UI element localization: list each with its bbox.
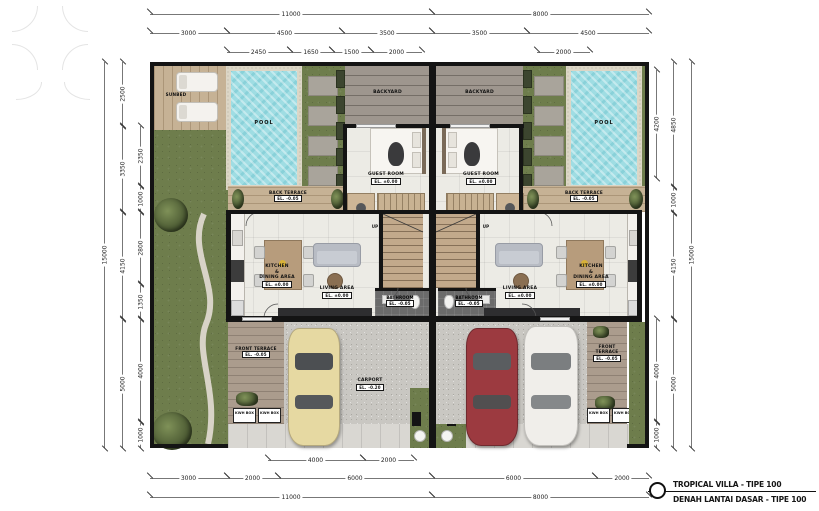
dim-top: 3500 — [432, 33, 527, 34]
stair-winder-line — [436, 214, 476, 232]
door-arc — [538, 212, 552, 226]
door-arc — [466, 288, 476, 298]
dim-bottom: 8000 — [432, 497, 649, 498]
dim-left: 4150 — [122, 212, 123, 319]
house-west-wall-left — [226, 210, 231, 322]
dim-left: 3350 — [122, 126, 123, 212]
watermark-door-symbol — [64, 82, 90, 100]
garden-path — [199, 214, 211, 444]
boundary-wall-bottom — [627, 444, 649, 448]
watermark-door-symbol — [16, 82, 42, 100]
dim-top: 4500 — [227, 33, 342, 34]
dim-right: 15000 — [691, 62, 692, 448]
dim-left: 15000 — [104, 62, 105, 448]
living-north-wall-right — [436, 210, 642, 214]
dim-bottom: 2000 — [227, 478, 278, 479]
dim-left: 2500 — [122, 62, 123, 126]
boundary-wall-bottom — [150, 444, 228, 448]
boundary-wall-right — [645, 62, 649, 448]
dim-right: 4850 — [673, 62, 674, 187]
annotation-overlay — [150, 62, 649, 448]
dim-bottom: 6000 — [278, 478, 432, 479]
dim-bottom: 4000 — [268, 460, 363, 461]
floor-plan-sheet: SUNBED POOL BACKYARD BACK TERRACEEL. -0.… — [0, 0, 819, 511]
floor-plan: SUNBED POOL BACKYARD BACK TERRACEEL. -0.… — [150, 62, 649, 448]
living-north-wall-left — [226, 210, 432, 214]
dim-left: 1000 — [140, 186, 141, 212]
watermark-door-symbol — [12, 44, 38, 70]
dim-bottom: 11000 — [150, 497, 432, 498]
dim-right: 5000 — [673, 319, 674, 448]
dim-bottom: 6000 — [432, 478, 595, 479]
title-logo-icon — [649, 482, 666, 499]
dim-left: 5000 — [122, 319, 123, 448]
dim-top: 3500 — [342, 33, 432, 34]
dim-right: 4000 — [656, 319, 657, 422]
dim-top: 8000 — [432, 14, 649, 15]
dim-top: 1500 — [332, 52, 371, 53]
dim-top: 4500 — [527, 33, 649, 34]
dim-top: 2000 — [537, 52, 590, 53]
window — [450, 124, 490, 128]
watermark-door-symbol — [62, 6, 88, 32]
dim-right: 4200 — [656, 70, 657, 178]
dim-left: 2350 — [140, 126, 141, 186]
guest-west-wall-left — [343, 124, 347, 214]
dim-bottom: 2000 — [595, 478, 649, 479]
title-divider — [648, 491, 816, 492]
title-line2: DENAH LANTAI DASAR - TIPE 100 — [673, 495, 806, 504]
window — [242, 317, 272, 321]
dim-right: 1000 — [656, 422, 657, 448]
dim-left: 4000 — [140, 319, 141, 422]
dim-left: 1350 — [140, 284, 141, 319]
window — [540, 317, 570, 321]
boundary-wall-left — [150, 62, 154, 448]
watermark-door-symbol — [62, 44, 88, 70]
party-wall — [429, 62, 436, 448]
stair-winder-line — [383, 214, 423, 232]
title-block: TROPICAL VILLA - TIPE 100 DENAH LANTAI D… — [648, 476, 816, 508]
dim-right: 4150 — [673, 213, 674, 319]
dim-right: 1000 — [673, 187, 674, 213]
window — [356, 124, 396, 128]
title-line1: TROPICAL VILLA - TIPE 100 — [673, 480, 781, 489]
watermark-door-symbol — [12, 6, 38, 32]
dim-bottom: 2000 — [363, 460, 414, 461]
door-arc — [246, 212, 260, 226]
guest-east-wall-right — [519, 124, 523, 214]
dim-top: 2450 — [227, 52, 290, 53]
dim-top: 3000 — [150, 33, 227, 34]
dim-left: 2800 — [140, 212, 141, 284]
dim-top: 2000 — [371, 52, 422, 53]
dim-top: 1650 — [290, 52, 332, 53]
boundary-wall-top — [150, 62, 649, 66]
door-arc — [388, 288, 398, 298]
dim-left: 1000 — [140, 422, 141, 448]
dim-bottom: 3000 — [150, 478, 227, 479]
dim-top: 11000 — [150, 14, 432, 15]
house-east-wall-right — [637, 210, 642, 322]
house-south-wall-right — [436, 316, 642, 322]
